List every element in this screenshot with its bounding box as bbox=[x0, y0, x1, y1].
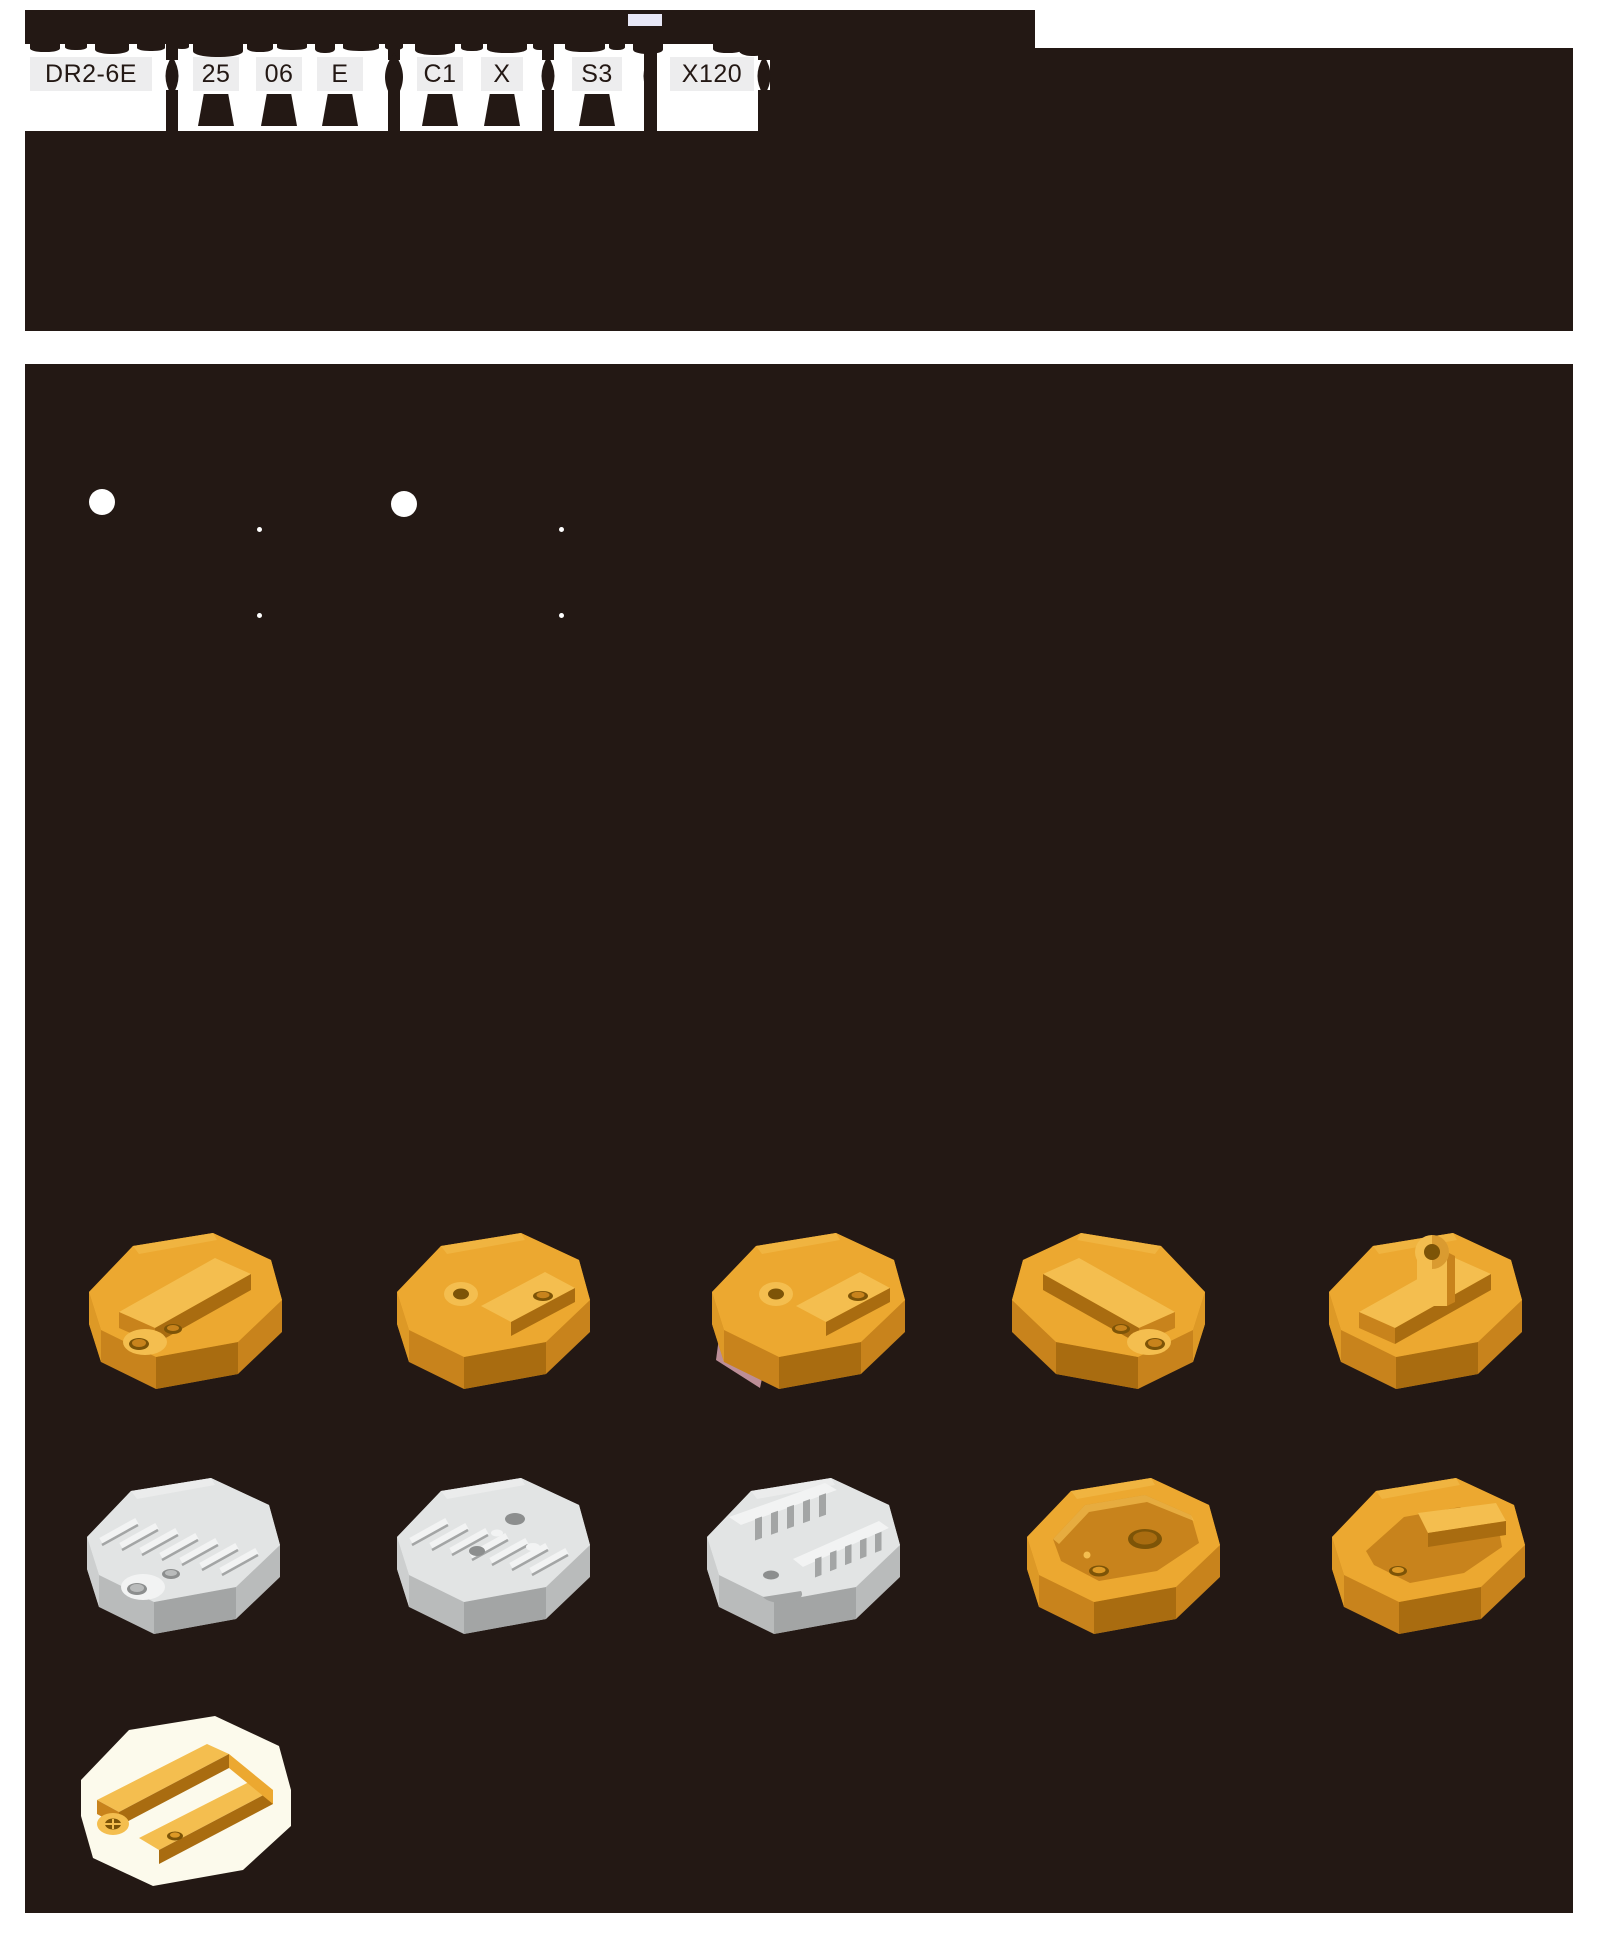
part-illustration-svg bbox=[995, 1455, 1245, 1645]
glyph-fragment bbox=[609, 44, 625, 50]
part-gray-socket-slotted-rails bbox=[675, 1455, 925, 1645]
part-gold-tray-ledge bbox=[1300, 1455, 1550, 1645]
code-label: X120 bbox=[682, 60, 742, 89]
ordering-info-panel: DR2-6E 25 06 E C1 X S3 X120 bbox=[25, 10, 1573, 331]
part-illustration-svg bbox=[365, 1455, 615, 1645]
connector-stem bbox=[542, 90, 554, 131]
part-illustration-svg bbox=[1300, 1455, 1550, 1645]
part-illustration-svg bbox=[675, 1455, 925, 1645]
connector-bar bbox=[644, 44, 657, 131]
code-box-series: DR2-6E bbox=[30, 57, 152, 91]
connector-foot bbox=[579, 94, 615, 126]
ordering-code-band: DR2-6E 25 06 E C1 X S3 X120 bbox=[25, 44, 770, 131]
glyph-fragment bbox=[487, 44, 527, 53]
glyph-fragment bbox=[193, 44, 243, 57]
glyph-fragment bbox=[277, 44, 307, 50]
part-illustration-svg bbox=[365, 1210, 615, 1400]
content-panel bbox=[25, 364, 1573, 1913]
connector-foot bbox=[261, 94, 297, 126]
connector-stem bbox=[388, 90, 400, 131]
part-illustration-svg bbox=[57, 1700, 307, 1890]
code-label: DR2-6E bbox=[45, 60, 137, 89]
glyph-fragment bbox=[95, 44, 129, 54]
glyph-fragment bbox=[137, 44, 165, 51]
connector-foot bbox=[484, 94, 520, 126]
code-label: 25 bbox=[202, 60, 231, 89]
part-gray-socket-finned-body bbox=[55, 1455, 305, 1645]
code-box-pressure: 06 bbox=[256, 57, 302, 91]
part-gold-socket-channel-left bbox=[57, 1210, 307, 1400]
code-box-option-e: E bbox=[317, 57, 363, 91]
glyph-fragment bbox=[461, 44, 483, 51]
glyph-fragment bbox=[415, 44, 455, 55]
list-bullet-small bbox=[257, 527, 262, 532]
part-illustration-svg bbox=[680, 1210, 930, 1400]
top-right-notch bbox=[1035, 10, 1573, 48]
list-bullet-small bbox=[559, 613, 564, 618]
connector-stem bbox=[758, 90, 770, 131]
list-bullet-large bbox=[391, 491, 417, 517]
connector-foot bbox=[322, 94, 358, 126]
glyph-fragment bbox=[343, 44, 379, 51]
code-label: E bbox=[331, 60, 348, 89]
list-bullet-small bbox=[559, 527, 564, 532]
code-box-s3: S3 bbox=[572, 57, 622, 91]
part-illustration-svg bbox=[1297, 1210, 1547, 1400]
list-bullet-large bbox=[89, 489, 115, 515]
connector-foot bbox=[422, 94, 458, 126]
code-label: C1 bbox=[424, 60, 457, 89]
code-box-c1: C1 bbox=[417, 57, 463, 91]
part-gold-socket-eyelet-side bbox=[365, 1210, 615, 1400]
code-label: S3 bbox=[581, 60, 613, 89]
code-box-x120: X120 bbox=[670, 57, 754, 91]
glyph-fragment bbox=[30, 44, 60, 52]
part-gold-frame-on-backdrop bbox=[57, 1700, 307, 1890]
connector-foot bbox=[198, 94, 234, 126]
part-gold-tray-large-hole bbox=[995, 1455, 1245, 1645]
glyph-fragment bbox=[315, 44, 335, 53]
connector-stem bbox=[166, 90, 178, 131]
part-illustration-svg bbox=[987, 1210, 1237, 1400]
code-box-x: X bbox=[481, 57, 523, 91]
glyph-fragment bbox=[65, 44, 87, 50]
glyph-fragment bbox=[565, 44, 605, 52]
catalog-page: { "ordering_code": { "segments": ["DR2-6… bbox=[0, 0, 1600, 1934]
glyph-fragment bbox=[247, 44, 273, 52]
code-label: 06 bbox=[265, 60, 294, 89]
part-gold-socket-eyelet-shadow bbox=[680, 1210, 930, 1400]
part-gray-socket-finned-plate bbox=[365, 1455, 615, 1645]
part-gold-socket-channel-right bbox=[987, 1210, 1237, 1400]
lavender-chip bbox=[628, 14, 662, 26]
list-bullet-small bbox=[257, 613, 262, 618]
part-illustration-svg bbox=[55, 1455, 305, 1645]
code-box-size: 25 bbox=[193, 57, 239, 91]
part-illustration-svg bbox=[57, 1210, 307, 1400]
code-label: X bbox=[493, 60, 510, 89]
part-gold-socket-eyelet-up bbox=[1297, 1210, 1547, 1400]
